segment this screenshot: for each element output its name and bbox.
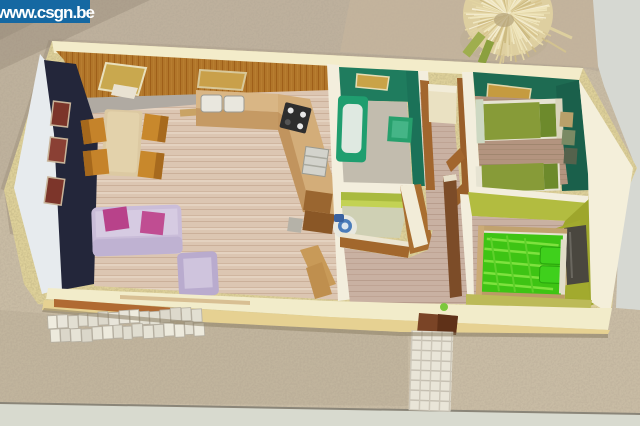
svg-text:www.csgn.be: www.csgn.be — [0, 3, 95, 22]
